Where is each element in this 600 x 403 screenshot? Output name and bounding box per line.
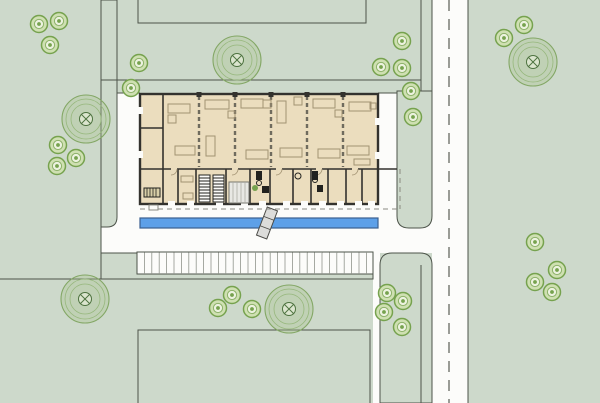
desk-outline <box>144 188 160 197</box>
shrub <box>379 285 396 302</box>
shrub <box>405 109 422 126</box>
corridor-door-opening <box>171 166 177 172</box>
east-wall-opening <box>375 118 381 125</box>
striped-desk <box>144 188 160 197</box>
shrub <box>42 37 59 54</box>
shrub <box>373 59 390 76</box>
shrub-center-dot <box>533 240 537 244</box>
shrub-center-dot <box>382 310 386 314</box>
shrub <box>395 293 412 310</box>
shrub-center-dot <box>502 36 506 40</box>
shrub-center-dot <box>409 89 413 93</box>
shrub <box>50 137 67 154</box>
shrub-center-dot <box>401 299 405 303</box>
tree-large <box>213 36 261 84</box>
stair-outline <box>199 175 210 202</box>
canal <box>140 218 378 228</box>
shrub-center-dot <box>385 291 389 295</box>
shrub-center-dot <box>74 156 78 160</box>
tree-large <box>509 38 557 86</box>
shrub-center-dot <box>57 19 61 23</box>
shrub-center-dot <box>55 164 59 168</box>
south-wall-opening <box>283 201 290 207</box>
stair-block <box>199 175 210 202</box>
stair-outline <box>213 175 224 202</box>
shrub <box>224 287 241 304</box>
shrub <box>527 274 544 291</box>
column-tick <box>197 92 202 97</box>
corridor-door-opening <box>276 166 282 172</box>
entry-step <box>149 205 158 210</box>
walkway-east <box>378 93 397 205</box>
shrub-center-dot <box>533 280 537 284</box>
shrub-center-dot <box>522 23 526 27</box>
shrub <box>527 234 544 251</box>
shrub-center-dot <box>37 22 41 26</box>
shrub-center-dot <box>400 39 404 43</box>
corridor-door-opening <box>352 166 358 172</box>
shrub <box>544 284 561 301</box>
sanitary-fixture <box>256 171 262 180</box>
shrub <box>376 304 393 321</box>
south-wall-opening <box>355 201 362 207</box>
tree-large <box>61 275 109 323</box>
shrub <box>31 16 48 33</box>
stair-block <box>213 175 224 202</box>
south-wall-opening <box>168 201 175 207</box>
east-wall-opening <box>375 152 381 159</box>
walkway-west <box>117 93 140 205</box>
shrub <box>394 33 411 50</box>
south-wall-opening <box>319 201 326 207</box>
column-tick <box>341 92 346 97</box>
tree-large <box>62 95 110 143</box>
parking-strip <box>137 252 373 274</box>
shrub <box>123 80 140 97</box>
shrub-center-dot <box>137 61 141 65</box>
kitchen-counter <box>229 182 249 203</box>
indoor-plant <box>252 185 258 191</box>
shrub-center-dot <box>411 115 415 119</box>
shrub <box>68 150 85 167</box>
shrub-center-dot <box>379 65 383 69</box>
corridor-door-opening <box>232 166 238 172</box>
site-plan <box>0 0 600 403</box>
building <box>137 92 400 210</box>
shrub <box>403 83 420 100</box>
shrub <box>131 55 148 72</box>
column-tick <box>305 92 310 97</box>
shrub <box>244 301 261 318</box>
column-tick <box>269 92 274 97</box>
column-tick <box>233 92 238 97</box>
shrub <box>549 262 566 279</box>
shrub <box>394 60 411 77</box>
road-vertical <box>432 0 468 403</box>
shrub <box>210 300 227 317</box>
shrub-center-dot <box>216 306 220 310</box>
west-wall-opening <box>137 151 143 158</box>
sanitary-fixture <box>317 185 323 192</box>
tree-large <box>265 285 313 333</box>
shrub <box>394 319 411 336</box>
footpath-south <box>373 253 380 403</box>
shrub-center-dot <box>230 293 234 297</box>
shrub-center-dot <box>129 86 133 90</box>
sanitary-fixture <box>262 186 269 193</box>
shrub-center-dot <box>250 307 254 311</box>
shrub-center-dot <box>400 325 404 329</box>
shrub <box>51 13 68 30</box>
south-wall-opening <box>301 201 308 207</box>
counter-outline <box>229 182 249 203</box>
west-wall-opening <box>137 107 143 114</box>
shrub-center-dot <box>555 268 559 272</box>
south-wall-opening <box>187 201 194 207</box>
south-wall-opening <box>259 201 266 207</box>
site-plan-drawing <box>0 0 600 403</box>
shrub-center-dot <box>56 143 60 147</box>
shrub-center-dot <box>400 66 404 70</box>
south-wall-opening <box>337 201 344 207</box>
shrub <box>49 158 66 175</box>
shrub <box>516 17 533 34</box>
south-wall-opening <box>368 201 375 207</box>
shrub <box>496 30 513 47</box>
shrub-center-dot <box>48 43 52 47</box>
shrub-center-dot <box>550 290 554 294</box>
